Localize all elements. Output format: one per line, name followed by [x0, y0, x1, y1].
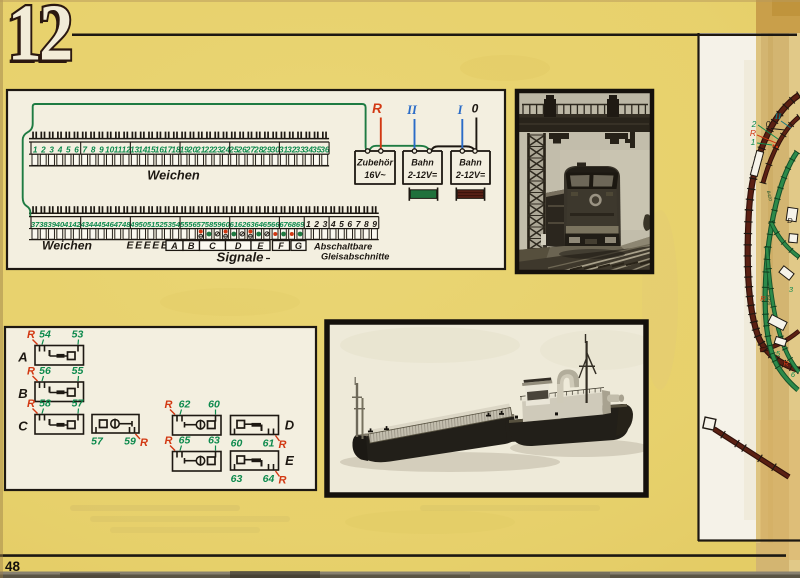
svg-text:3: 3: [49, 146, 54, 155]
svg-text:4: 4: [57, 146, 63, 155]
svg-text:R: R: [165, 435, 173, 447]
svg-text:57: 57: [72, 398, 85, 410]
svg-text:D: D: [787, 216, 793, 225]
svg-text:E: E: [144, 240, 152, 252]
svg-text:63: 63: [231, 473, 243, 485]
svg-text:8: 8: [91, 146, 96, 155]
svg-text:F: F: [278, 241, 284, 251]
svg-text:2-12V=: 2-12V=: [455, 170, 486, 180]
svg-text:55: 55: [72, 365, 84, 377]
svg-text:B420: B420: [766, 294, 772, 305]
svg-text:R: R: [27, 366, 35, 378]
svg-text:B: B: [188, 241, 195, 251]
svg-text:Bahn: Bahn: [459, 158, 482, 168]
svg-text:R: R: [165, 399, 173, 411]
svg-text:1: 1: [306, 219, 311, 229]
svg-text:60: 60: [231, 438, 243, 450]
svg-text:C: C: [209, 241, 216, 251]
svg-text:8: 8: [364, 219, 369, 229]
svg-text:57: 57: [91, 436, 104, 448]
svg-text:Weichen: Weichen: [147, 168, 200, 183]
svg-text:51: 51: [147, 220, 155, 229]
svg-text:41: 41: [63, 220, 72, 229]
svg-text:2-12V=: 2-12V=: [407, 170, 438, 180]
svg-text:61: 61: [230, 220, 238, 229]
svg-text:63: 63: [208, 435, 220, 447]
svg-text:12: 12: [8, 0, 71, 78]
svg-text:E: E: [135, 240, 143, 252]
svg-text:59: 59: [124, 436, 136, 448]
svg-text:R: R: [760, 294, 766, 303]
svg-text:2: 2: [40, 146, 46, 155]
svg-text:II: II: [774, 111, 782, 121]
svg-text:0: 0: [472, 102, 479, 116]
svg-text:II: II: [406, 103, 418, 117]
svg-text:54: 54: [39, 329, 51, 341]
svg-text:D: D: [285, 418, 295, 433]
svg-text:53: 53: [72, 329, 84, 341]
svg-text:Abschaltbare: Abschaltbare: [313, 242, 372, 252]
svg-text:9: 9: [99, 146, 104, 155]
svg-text:5: 5: [66, 146, 71, 155]
svg-text:E: E: [152, 240, 160, 252]
svg-text:2: 2: [313, 219, 319, 229]
svg-text:16V~: 16V~: [364, 170, 386, 180]
svg-text:9: 9: [372, 219, 377, 229]
svg-text:6: 6: [347, 219, 352, 229]
svg-text:E: E: [285, 453, 294, 468]
svg-text:Weichen: Weichen: [42, 239, 92, 253]
svg-text:61: 61: [263, 438, 275, 450]
svg-text:56: 56: [39, 365, 51, 377]
svg-text:Bahn: Bahn: [411, 158, 434, 168]
svg-text:64: 64: [263, 473, 275, 485]
svg-text:58: 58: [39, 398, 51, 410]
svg-text:Zubehör: Zubehör: [356, 158, 393, 168]
svg-text:62: 62: [179, 399, 191, 411]
svg-text:5: 5: [339, 219, 344, 229]
svg-text:R: R: [783, 359, 789, 368]
svg-text:E: E: [126, 240, 134, 252]
svg-text:G: G: [295, 241, 302, 251]
svg-text:1: 1: [751, 137, 756, 147]
svg-text:Gleisabschnitte: Gleisabschnitte: [321, 252, 389, 262]
svg-text:1: 1: [33, 146, 38, 155]
svg-text:C: C: [18, 419, 28, 434]
svg-text:A: A: [17, 350, 27, 365]
svg-text:R: R: [27, 329, 35, 341]
svg-text:4: 4: [330, 219, 336, 229]
svg-text:A: A: [170, 241, 178, 251]
svg-text:6: 6: [74, 146, 79, 155]
svg-text:R: R: [140, 437, 148, 449]
svg-text:65: 65: [179, 435, 191, 447]
svg-text:Signale: Signale: [217, 250, 264, 265]
svg-text:0: 0: [766, 119, 771, 129]
svg-text:60: 60: [208, 399, 220, 411]
svg-text:36: 36: [320, 146, 330, 155]
svg-text:R: R: [27, 398, 35, 410]
svg-text:R: R: [372, 101, 382, 116]
svg-text:3: 3: [323, 219, 328, 229]
svg-text:7: 7: [83, 146, 88, 155]
